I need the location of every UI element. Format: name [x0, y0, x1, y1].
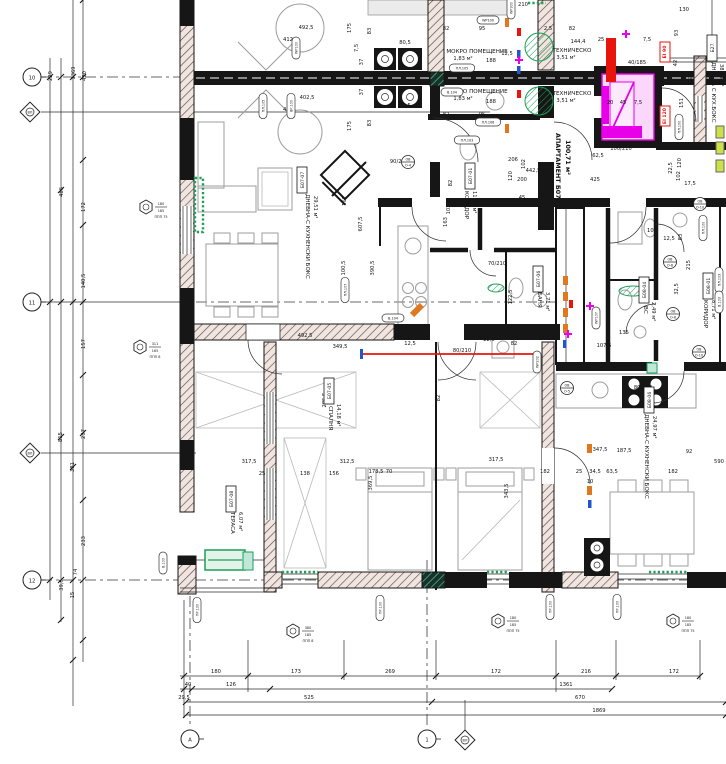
dimension-label: 15 [70, 592, 76, 599]
room-tag: Б08-01 [703, 273, 713, 299]
dimension-label: 34,5 [589, 469, 601, 475]
level-note: ППП 75 [154, 215, 167, 219]
axis-marker-А: А [181, 730, 204, 748]
level-bottom: 185 [685, 623, 691, 627]
dimension-label: 45 [519, 195, 526, 201]
dimension-label: 63,5 [606, 469, 618, 475]
room-tag: Б07-05 [324, 378, 334, 404]
dimension-label: 25 [259, 471, 266, 477]
dimension-label: 17,5 [684, 181, 696, 187]
dimension-label: 425 [590, 177, 600, 183]
hvac-tag: ОВО-5 [561, 382, 574, 395]
dimension-label: 62,5 [592, 153, 604, 159]
room-tag-label: Б27 [710, 43, 716, 52]
dimension-label: 42 [673, 60, 679, 67]
dimension-label: 188 [486, 99, 496, 105]
dimension-label: 138 [300, 471, 310, 477]
pipe-tag: В.103 [715, 291, 723, 313]
dimension-label: 492,5 [298, 333, 313, 339]
room-label: БАНЯ [536, 292, 542, 308]
dimension-label: 175 [347, 121, 353, 131]
pipe-tag-label: ПЛ.100 [677, 121, 681, 134]
dimension-label: 25 [576, 469, 583, 475]
pipe-tag-label: ПЛ.107 [343, 284, 347, 297]
dimension-label: 269 [385, 669, 395, 675]
dimension-label: 525 [304, 695, 314, 701]
dimension-label: 22,5 [668, 162, 674, 174]
dimension-label: 82 [511, 341, 518, 347]
axis-marker-12: 12 [23, 571, 46, 589]
pipe-tag: ПЛ.100 [699, 215, 707, 240]
pipe-tag: ПР.100 [376, 595, 384, 620]
room-label: 1,83 м² [453, 56, 472, 62]
dimension-label: 237 [81, 429, 87, 439]
dimension-label: 349,5 [333, 344, 348, 350]
pipe-tag: ПЛ.105 [259, 93, 267, 118]
room-label: ВС [642, 306, 648, 314]
dimension-label: 151 [679, 98, 685, 108]
room-tag: Б07-08 [226, 486, 236, 512]
axis-label: 12 [29, 578, 36, 584]
hvac-tag-type: ОВ [671, 310, 677, 314]
dimension-label: 180 [211, 669, 221, 675]
dimension-label: 140,5 [81, 274, 87, 289]
dimension-label: 10 [587, 479, 594, 485]
dimension-label: 590 [714, 459, 724, 465]
level-note: ППП 8 [303, 639, 314, 643]
hvac-tag-type: ОВ [565, 384, 571, 388]
dimension-label: 45 [620, 100, 627, 106]
dimension-label: 29,5 [178, 695, 190, 701]
dimension-label: 172 [81, 202, 87, 212]
level-top: 311 [152, 342, 158, 346]
axis-label: ВЛ [28, 452, 33, 456]
room-label: ДНЕВНА-С КУХНЕНСКИ БОКС [304, 194, 310, 279]
hvac-tag: ОВО-8 [664, 256, 677, 269]
pipe-tag: WP100 [477, 16, 499, 24]
level-tag: 180185ППП 75 [492, 614, 520, 633]
pipe-tag: В.100 [159, 552, 167, 574]
dimension-label: 82 [436, 395, 442, 402]
dimension-label: 172 [669, 669, 679, 675]
dimension-label: 156 [329, 471, 339, 477]
pipe-tag-label: В.103 [717, 297, 721, 307]
door-size-label: 40/185 [628, 60, 646, 66]
dimension-label: 32,5 [674, 283, 680, 295]
level-note: ППП 75 [681, 629, 694, 633]
dimension-label: 82 [443, 26, 450, 32]
dimension-label: 22,5 [483, 337, 495, 343]
axis-label: ВЛ [28, 111, 33, 115]
room-tag-label: Б07-07 [300, 172, 306, 189]
room-label: ТЕХНИЧЕСКО [552, 91, 592, 97]
level-top: 180 [510, 616, 516, 620]
door-size-label: 80/210 [453, 348, 471, 354]
dimension-label: 82 [569, 26, 576, 32]
pipe-tag: WP300 [507, 0, 515, 19]
door-size-label: 100/210 [610, 146, 632, 152]
room-tag-label: Б08-01 [706, 278, 712, 295]
fire-rating-tag: EI 90 [660, 42, 670, 62]
door-size-label: 70/210 [488, 261, 506, 267]
dimension-label: 317,5 [489, 457, 504, 463]
room-tag: Б07-01 [465, 163, 475, 189]
dimension-label: 369,5 [368, 476, 374, 491]
floor-plan-svg: 492,5412402,541282952,58280,518812,5144,… [0, 0, 726, 764]
dimension-label: 178,5 [369, 469, 384, 475]
dimension-label: 144,4 [571, 39, 587, 45]
level-tag: 180185ППП 75 [667, 614, 695, 633]
dimension-label: 390,5 [370, 261, 376, 276]
dimension-label: 122,5 [508, 290, 514, 305]
room-tag: Б07-06 [533, 266, 543, 292]
level-note: ППП 75 [506, 629, 519, 633]
dimension-label: 70 [386, 469, 393, 475]
room-label: 3,51 м² [556, 98, 575, 104]
level-tag: 180185ППП 75 [140, 200, 168, 219]
room-label: 24,97 м² [651, 416, 657, 439]
hvac-tag-code: О-5 [564, 390, 570, 394]
dimension-label: 442,5 [526, 168, 541, 174]
pipe-tag: ПЛ.105 [449, 64, 474, 72]
room-tag-label: Б07-05 [327, 383, 333, 400]
room-tag-label: Б07-08 [229, 491, 235, 508]
room-label: ДНЕВНА С КУХ.БОКС [710, 62, 716, 123]
dimension-label: 126 [226, 682, 236, 688]
hvac-tag: ОВО-4 [402, 156, 415, 169]
room-tag-label: Б07-06 [536, 271, 542, 288]
pipe-tag: В.104 [441, 88, 463, 96]
hvac-tag-code: О-8 [667, 264, 673, 268]
room-label: ДНЕВНА-С КУХНЕНСКИ БОКС [643, 414, 649, 499]
pipe-tag: ПР.100 [193, 597, 201, 622]
dimension-label: 187,5 [617, 448, 632, 454]
pipe-tag-label: ПЛ.100 [701, 222, 705, 235]
dimension-label: 607,5 [358, 217, 364, 232]
dimension-label: 206 [508, 157, 518, 163]
dimension-label: 80,5 [399, 103, 411, 109]
dimension-label: 7,5 [643, 37, 651, 43]
pipe-tag-label: ПЛ.105 [456, 66, 469, 70]
pipe-tag: ПР.100 [546, 594, 554, 619]
dimension-label: 1369 [71, 66, 77, 79]
hvac-tag: ОВО-10 [693, 346, 706, 359]
dimension-label: 92 [686, 449, 693, 455]
level-note: ППП 8 [150, 355, 161, 359]
dimension-label: 215 [686, 260, 692, 270]
dimension-label: 93 [674, 30, 680, 37]
dimension-label: 1869 [592, 708, 605, 714]
pipe-tag: ВР.100 [287, 93, 295, 118]
room-label: АПАРТАМЕНТ Б07 [554, 133, 562, 199]
fire-rating-label: EI 90 [662, 46, 668, 59]
dimension-label: 173 [291, 669, 301, 675]
dimension-label: 381 [70, 462, 76, 472]
dimension-label: 188 [486, 58, 496, 64]
level-bottom: 185 [305, 633, 311, 637]
dimension-label: 102 [676, 171, 682, 181]
dimension-label: 402,5 [300, 95, 315, 101]
dimension-label: 100,5 [341, 261, 347, 276]
dimension-label: 296 [688, 73, 694, 83]
dimension-label: 172 [491, 669, 501, 675]
dimension-label: 343,5 [504, 484, 510, 499]
pipe-tag-label: ПР.100 [548, 601, 552, 613]
pipe-tag: ПЛ.103 [715, 267, 723, 292]
dimension-label: 1361 [559, 682, 572, 688]
hvac-tag: ОВО-8 [667, 308, 680, 321]
dimension-label: 40 [185, 682, 192, 688]
pipe-tag-label: В.104 [447, 90, 457, 94]
pipe-tag-label: В.104 [388, 316, 398, 320]
dimension-label: 120 [677, 158, 683, 168]
fire-rating-tag: EI 120 [660, 106, 670, 126]
level-top: 380 [305, 626, 311, 630]
hvac-tag: ОВО-10 [694, 198, 707, 211]
pipe-tag: ПР.100 [613, 594, 621, 619]
hvac-tag-type: ОВ [668, 258, 674, 262]
room-label: СПАЛНЯ [327, 406, 333, 430]
axis-marker-1: 1 [418, 730, 441, 748]
hvac-tag-code: О-8 [670, 316, 676, 320]
dimension-label: 216 [581, 669, 591, 675]
axis-marker-ВЛ: ВЛ [455, 730, 475, 750]
dimension-label: 103,5 [446, 200, 452, 215]
dimension-label: 210 [518, 2, 528, 8]
room-label: 11,93 м² [471, 191, 477, 214]
room-label: 1,83 м² [453, 96, 472, 102]
dimension-label: 83 [367, 28, 373, 35]
level-top: 180 [685, 616, 691, 620]
dimension-label: 412 [283, 37, 293, 43]
dimension-label: 7,5 [354, 44, 360, 52]
pipe-tag-label: ПЛ.105 [261, 100, 265, 113]
dimension-label: 39,5 [59, 579, 65, 591]
dimension-label: 83 [678, 234, 684, 241]
dimension-label: 82 [443, 112, 450, 118]
room-label: 2,49 м² [650, 302, 656, 321]
dimension-label: 490 [82, 71, 88, 81]
pipe-tag-label: ПЛ.106 [482, 120, 495, 124]
dimension-label: 312,5 [340, 459, 355, 465]
room-label: 100,71 м² [564, 140, 572, 175]
dimension-label: 74 [73, 568, 79, 575]
room-tag: Б08-06 [644, 387, 654, 413]
hvac-tag-type: ОВ [697, 348, 703, 352]
dimension-label: 20 [607, 100, 614, 106]
dimension-label: 37 [359, 89, 365, 96]
dimension-label: 7,5 [634, 100, 642, 106]
dimension-label: 130 [679, 7, 689, 13]
dimension-label: 12,5 [663, 236, 675, 242]
room-tag-label: Б08-04 [642, 282, 648, 299]
dimension-label: 163 [443, 217, 449, 227]
dimension-label: 120 [508, 171, 514, 181]
pipe-tag-label: В.100 [161, 558, 165, 568]
dimension-label: 200 [517, 177, 527, 183]
pipe-tag-label: ПЛ.103 [717, 274, 721, 287]
dimension-label: 229 [48, 71, 54, 81]
dimension-label: 486 [59, 187, 65, 197]
pipe-tag-label: ПЛ.103 [461, 138, 474, 142]
axis-marker-11: 11 [23, 293, 46, 311]
room-label: ТЕХНИЧЕСКО [552, 48, 592, 54]
dimension-label: 83 [367, 120, 373, 127]
dimension-label: 37 [359, 59, 365, 66]
axis-marker-ВЛ: ВЛ [20, 443, 40, 463]
dimension-label: 233 [81, 536, 87, 546]
room-label: 29,51 м² [312, 196, 318, 219]
axis-marker-10: 10 [23, 68, 46, 86]
room-label: 3,51 м² [556, 55, 575, 61]
fire-rating-label: EI 120 [662, 108, 668, 124]
pipe-tag-label: WP100 [482, 18, 494, 22]
pipe-tag-label: ПР.100 [378, 602, 382, 614]
fire-wall-red [606, 38, 616, 82]
pipe-tag: WP100 [292, 37, 300, 59]
pipe-tag: ПЛ.106 [475, 118, 500, 126]
room-label: ТЕРАСА [229, 511, 235, 534]
axis-label: 1 [425, 737, 428, 743]
dimension-label: 12,5 [404, 341, 416, 347]
dimension-label: 182 [668, 469, 678, 475]
pipe-tag-label: ПР.100 [615, 601, 619, 613]
level-bottom: 185 [510, 623, 516, 627]
room-label: КОРИДОР [702, 300, 708, 329]
dimension-label: 157 [81, 339, 87, 349]
pipe-tag: ПЛ.100 [675, 114, 683, 139]
pipe-tag-label: ВР.100 [289, 100, 293, 112]
room-tag-label: Б08-06 [647, 392, 653, 409]
room-tag-label: Б07-01 [468, 168, 474, 185]
level-tag: 311165ППП 8 [134, 340, 161, 359]
level-tag: 380185ППП 8 [287, 624, 314, 643]
room-label: 3,71 м² [544, 292, 550, 311]
dimension-label: 135 [619, 330, 629, 336]
hvac-tag-code: О-10 [696, 206, 704, 210]
room-tag: Б08-04 [639, 277, 649, 303]
dimension-label: 175 [347, 23, 353, 33]
axis-marker-ВЛ: ВЛ [20, 102, 40, 122]
room-label: 38,73 м² [718, 64, 724, 87]
dimension-label: 102 [647, 228, 657, 234]
hvac-tag-code: О-10 [695, 354, 703, 358]
vent-duct-circle [525, 87, 553, 115]
floor-plan-page: 492,5412402,541282952,58280,518812,5144,… [0, 0, 726, 764]
level-bottom: 185 [158, 209, 164, 213]
dimension-label: 37,5 [616, 362, 628, 368]
dimension-label: 80,5 [399, 40, 411, 46]
pipe-tag: ПЛ.103 [454, 136, 479, 144]
dimension-label: 95 [479, 26, 486, 32]
dimension-label: 162 [342, 196, 348, 206]
dimension-label: 2,5 [544, 26, 552, 32]
hvac-tag-code: О-4 [405, 164, 411, 168]
pipe-tag: В.104 [382, 314, 404, 322]
pipe-tag: WP107 [592, 307, 600, 329]
pipe-tag-label: WP202 [535, 356, 539, 368]
dimension-label: 815 [58, 432, 64, 442]
pipe-tag-label: WP107 [594, 312, 598, 324]
axis-markers: 1011121АВЛВЛВЛ [20, 68, 475, 750]
pipe-tag-label: WP100 [294, 42, 298, 54]
room-tag: Б07-07 [297, 167, 307, 193]
dimension-label: 82 [448, 180, 454, 187]
dimension-label: 347,5 [593, 447, 608, 453]
dimension-label: 317,5 [242, 459, 257, 465]
dimension-label: 25 [598, 37, 605, 43]
hvac-tag-type: ОВ [698, 200, 704, 204]
dimension-label: 670 [575, 695, 585, 701]
pipe-tag-label: WP300 [509, 2, 513, 14]
pipe-tag-label: ПР.100 [195, 604, 199, 616]
level-top: 180 [158, 202, 164, 206]
room-tag: Б27 [707, 35, 717, 61]
axis-label: А [188, 737, 192, 743]
dimension-label: 107,5 [597, 343, 612, 349]
dimension-grid-bottom [180, 600, 726, 718]
axis-label: 11 [29, 300, 36, 306]
dimension-label: 492,5 [299, 25, 314, 31]
dimension-label: 182 [540, 469, 550, 475]
room-label: 14,18 м² [335, 404, 341, 427]
vent-duct-circle [525, 33, 553, 61]
axis-label: 10 [29, 75, 36, 81]
hvac-tag-type: ОВ [406, 158, 412, 162]
room-label: 6,07 м² [237, 512, 243, 531]
room-label: КОРИДОР [463, 191, 469, 220]
axis-label: ВЛ [463, 739, 468, 743]
utility-shaft [556, 208, 584, 364]
room-label: МОКРО ПОМЕЩЕНИЕ [446, 49, 508, 55]
dimension-label: 95 [479, 112, 486, 118]
pipe-tag: ПЛ.107 [341, 277, 349, 302]
level-bottom: 165 [152, 349, 158, 353]
pipe-tag: WP202 [533, 351, 541, 373]
